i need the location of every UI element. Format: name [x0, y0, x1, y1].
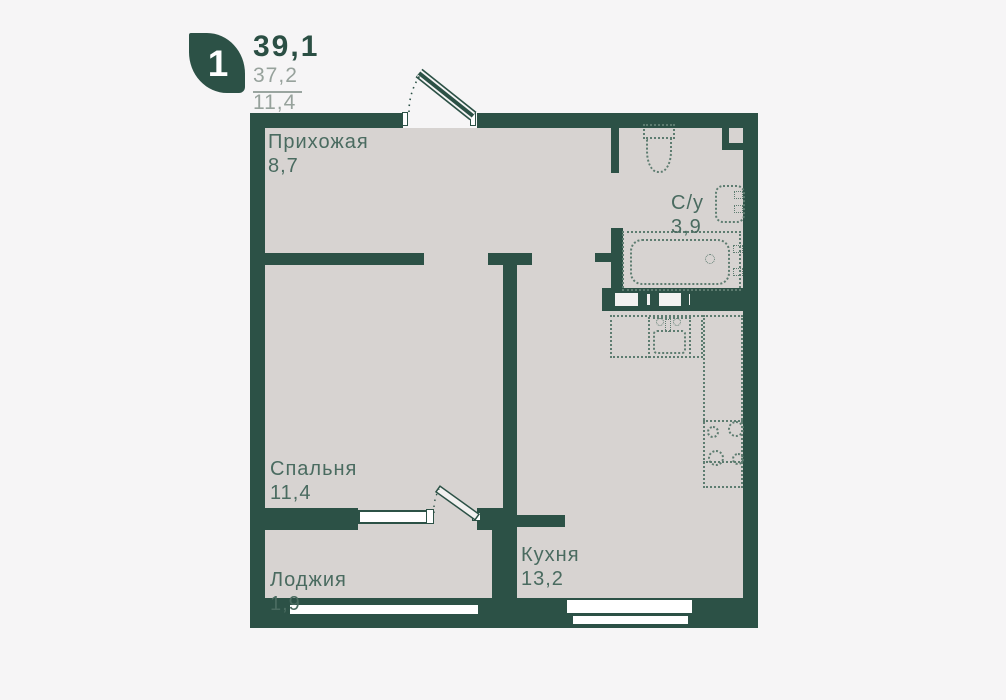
room-name: Спальня — [270, 457, 357, 481]
room-area: 8,7 — [268, 154, 369, 178]
room-label-bedroom: Спальня 11,4 — [270, 457, 357, 505]
room-name: Кухня — [521, 543, 580, 567]
entrance-door-icon — [409, 71, 475, 119]
room-label-bathroom: С/у 3,9 — [671, 191, 704, 239]
loggia-door-icon — [434, 486, 479, 520]
floorplan-page: { "header": { "rooms_badge": "1", "area_… — [0, 0, 1006, 700]
room-label-hallway: Прихожая 8,7 — [268, 130, 369, 178]
room-name: Прихожая — [268, 130, 369, 154]
room-name: Лоджия — [270, 568, 347, 592]
doors-overlay — [0, 0, 1006, 700]
room-label-kitchen: Кухня 13,2 — [521, 543, 580, 591]
room-area: 1,9 — [270, 592, 347, 616]
room-name: С/у — [671, 191, 704, 215]
room-label-loggia: Лоджия 1,9 — [270, 568, 347, 616]
room-area: 11,4 — [270, 481, 357, 505]
room-area: 13,2 — [521, 567, 580, 591]
room-area: 3,9 — [671, 215, 704, 239]
